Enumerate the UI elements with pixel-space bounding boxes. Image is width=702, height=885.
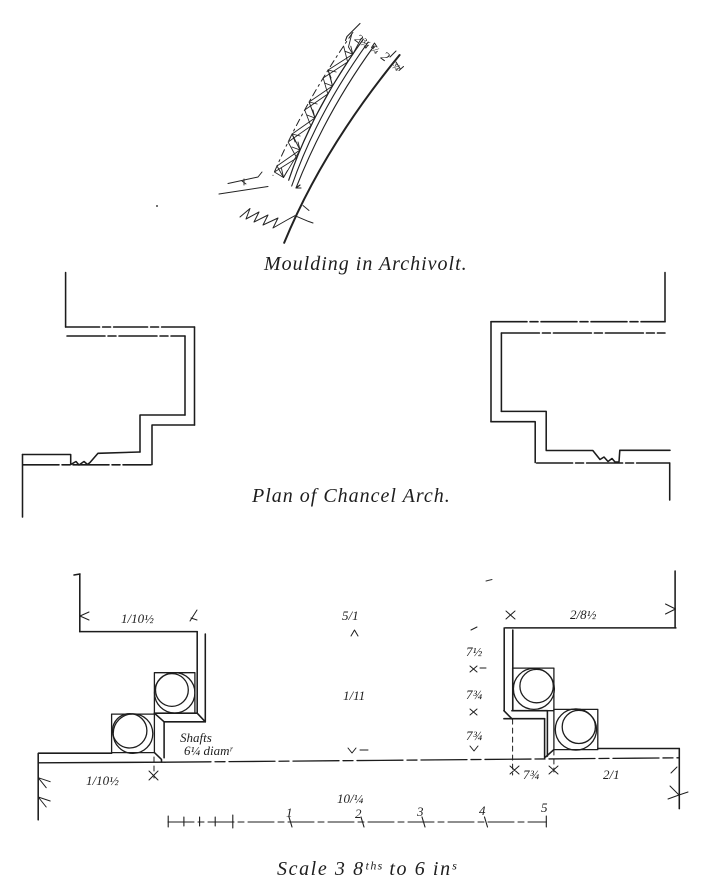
svg-text:3: 3 (416, 804, 424, 819)
svg-text:6¼ diamʳ: 6¼ diamʳ (184, 743, 234, 758)
svg-text:Plan of Chancel Arch.: Plan of Chancel Arch. (251, 485, 451, 507)
svg-text:7¾: 7¾ (523, 767, 540, 782)
svg-text:Scale 3 8ᵗʰˢ to 6 inˢ: Scale 3 8ᵗʰˢ to 6 inˢ (277, 858, 458, 880)
svg-text:1/10½: 1/10½ (86, 773, 119, 788)
svg-text:7¾: 7¾ (466, 687, 483, 702)
svg-text:¼: ¼ (368, 44, 381, 58)
svg-text:1/10½: 1/10½ (121, 611, 154, 626)
svg-text:2/8½: 2/8½ (570, 607, 597, 622)
svg-text:¾: ¾ (389, 61, 402, 75)
svg-text:5: 5 (541, 800, 548, 815)
svg-text:1: 1 (286, 805, 293, 820)
svg-text:5/1: 5/1 (342, 608, 359, 623)
svg-text:7¾: 7¾ (466, 728, 483, 743)
svg-text:7½: 7½ (466, 644, 483, 659)
svg-text:2/1: 2/1 (603, 767, 620, 782)
svg-text:4: 4 (479, 803, 486, 818)
svg-text:2: 2 (355, 806, 362, 821)
svg-text:10/¼: 10/¼ (337, 791, 364, 806)
svg-text:1/11: 1/11 (343, 688, 365, 703)
svg-text:Moulding in Archivolt.: Moulding in Archivolt. (263, 253, 468, 275)
